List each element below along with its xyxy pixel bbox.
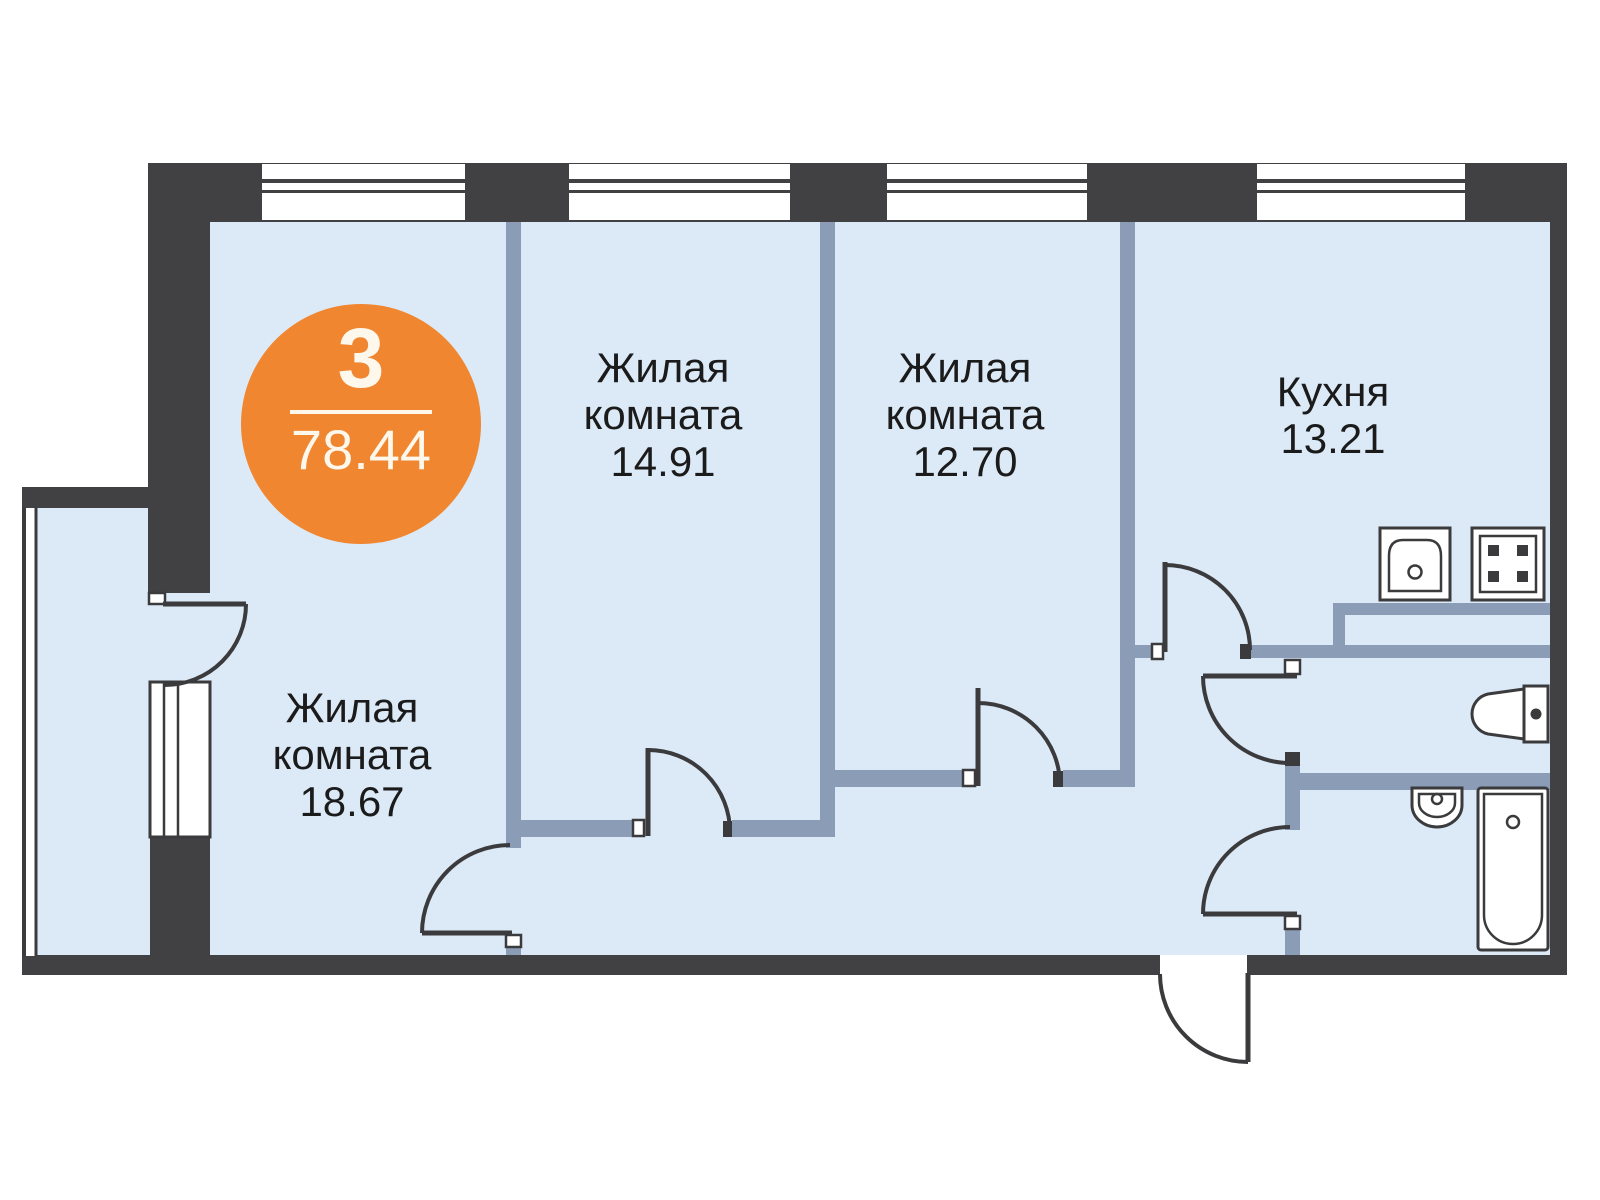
room-label-kitchen: Кухня 13.21 [1173, 368, 1493, 462]
apartment-badge: 3 78.44 [241, 304, 481, 544]
room-label-living-2: Жилая комната 12.70 [805, 344, 1125, 485]
room-area: 12.70 [805, 438, 1125, 485]
washbasin-icon [1412, 788, 1462, 827]
room-name-line: комната [503, 391, 823, 438]
room-label-living-1: Жилая комната 14.91 [503, 344, 823, 485]
room-area: 18.67 [192, 778, 512, 825]
room-area: 13.21 [1173, 415, 1493, 462]
rooms-count: 3 [338, 314, 385, 402]
room-name-line: Кухня [1173, 368, 1493, 415]
bathtub-icon [1478, 788, 1548, 950]
room-name-line: Жилая [503, 344, 823, 391]
window-symbol [569, 164, 790, 220]
window-symbol [1257, 164, 1465, 220]
total-area: 78.44 [291, 424, 431, 476]
room-name-line: Жилая [805, 344, 1125, 391]
floor-plan-drawing [0, 0, 1600, 1200]
kitchen-sink-icon [1380, 528, 1450, 600]
floor-area [37, 222, 1550, 956]
room-name-line: Жилая [192, 684, 512, 731]
toilet-icon [1472, 686, 1548, 742]
room-area: 14.91 [503, 438, 823, 485]
window-symbol [262, 164, 465, 220]
room-name-line: комната [192, 731, 512, 778]
stove-icon [1472, 528, 1544, 600]
window-symbol [887, 164, 1087, 220]
floor-plan: Жилая комната 14.91 Жилая комната 12.70 … [0, 0, 1600, 1200]
balcony-floor [37, 508, 150, 956]
balcony-glazing [22, 508, 38, 956]
entrance-door-icon [1160, 973, 1248, 1062]
badge-divider [290, 410, 432, 414]
room-name-line: комната [805, 391, 1125, 438]
room-label-living-3: Жилая комната 18.67 [192, 684, 512, 825]
